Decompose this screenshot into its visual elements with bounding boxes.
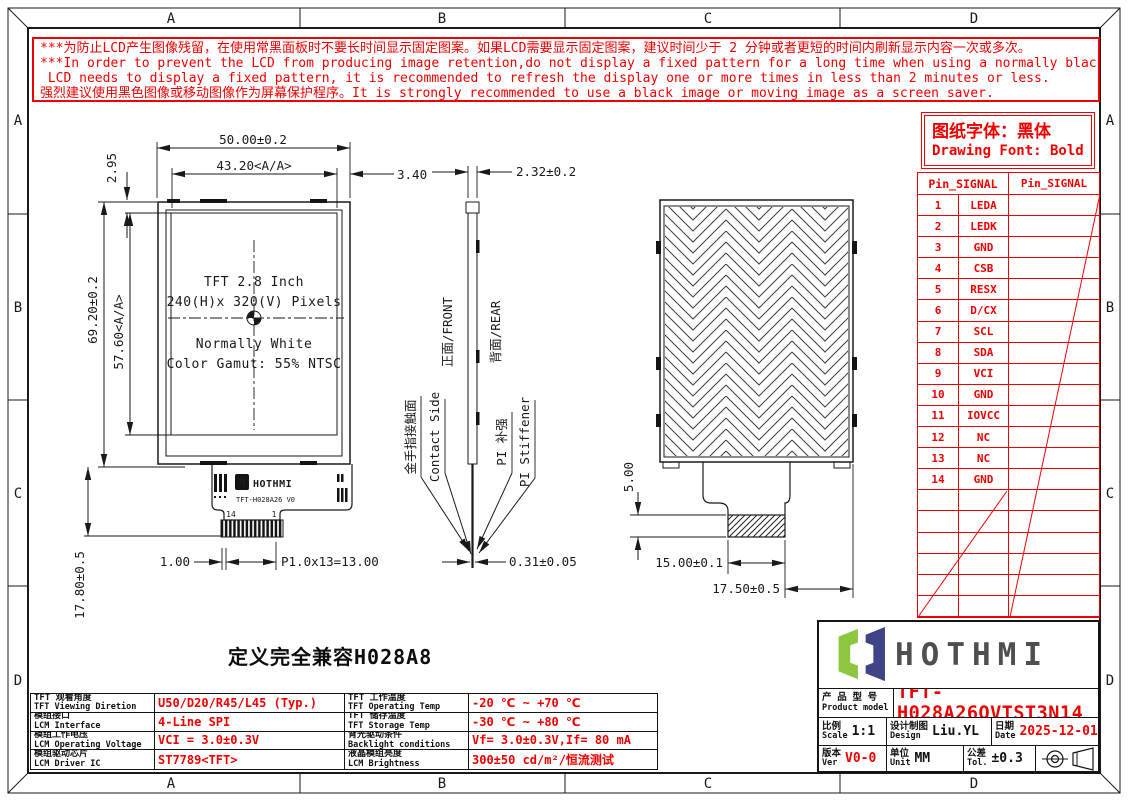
spec-value: 300±50 cd/m²/恒流测试 [469,750,657,769]
spec-value: ST7789<TFT> [155,750,344,769]
zone-label: B [438,776,446,792]
spec-value: -20 ℃ ~ +70 ℃ [469,694,657,713]
compatibility-note: 定义完全兼容H028A8 [228,641,432,670]
rear-view: 5.00 15.00±0.1 17.50±0.5 [621,200,857,598]
pin-no: 14 [918,469,959,490]
spec-value: VCI = 3.0±0.3V [155,732,344,751]
centerlines [168,240,344,430]
font-note-en: Drawing Font: Bold [932,142,1091,160]
gold-finger-connector [221,520,283,537]
side-view: 2.32±0.2 0.31±0.05 正面/FRONT 背面/REAR 金手指接… [403,164,577,569]
zone-label: B [14,300,22,316]
dim-aa-width: 43.20<A/A> [216,158,291,173]
design-cell: 设计制图Design Liu.YL [887,718,992,745]
pin-signal: GND [959,385,1009,406]
brand-logo: HOTHMI [819,622,1098,688]
spec-table-left: TFT 观看角度TFT Viewing Diretion U50/D20/R45… [31,694,344,769]
version-cell: 版本Ver V0-0 [819,746,887,771]
front-view: TFT 2.8 Inch 240(H)x 320(V) Pixels Norma… [158,199,352,537]
warning-line: ***为防止LCD产生图像残留，在使用常黑面板时不要长时间显示固定图案。如果LC… [40,41,1092,56]
spec-value: U50/D20/R45/L45 (Typ.) [155,694,344,713]
dim-right-margin: 3.40 [397,167,427,182]
mini-logo-h-icon: H [238,476,245,490]
pin-table-header-left: Pin_SIGNAL [918,173,1009,195]
pin-no: 5 [918,279,959,300]
zone-label: D [14,673,22,689]
dim-aa-height: 57.60<A/A> [111,294,126,369]
pin-signal: NC [959,448,1009,469]
pin-table: Pin_SIGNAL Pin_SIGNAL 1LEDA 2LEDK 3GND 4… [917,172,1100,618]
zone-label: A [1106,113,1115,129]
spec-value: Vf= 3.0±0.3V,If= 80 mA [469,732,657,751]
font-note-box: 图纸字体：黑体 Drawing Font: Bold [921,112,1095,169]
zone-label: D [970,11,978,27]
herringbone-hatch [665,207,848,456]
spec-label: 液晶模组亮度LCM Brightness [345,750,469,769]
label-contact-en: Contact Side [427,392,442,482]
dim-height: 69.20±0.2 [85,276,100,344]
spec-label: 背光驱动条件Backlight conditions [345,732,469,751]
fpc-mini-logo: H HOTHMI TFT-H028A26 V0 [235,474,295,504]
pin-signal: GND [959,237,1009,258]
zone-label: D [970,776,978,792]
pin-no: 13 [918,448,959,469]
drawing-sheet: A B C D A B C D A B C D A B C D [0,0,1128,801]
pin-signal: IOVCC [959,406,1009,427]
panel-line: 240(H)x 320(V) Pixels [167,295,342,310]
pin-signal: GND [959,469,1009,490]
pin-signal: LEDA [959,195,1009,216]
dim-stiffener-width: 15.00±0.1 [655,555,723,570]
spec-label: 模组驱动芯片LCM Driver IC [31,750,155,769]
pin-no: 7 [918,322,959,343]
center-mark-icon [247,311,261,325]
pin-signal: RESX [959,279,1009,300]
dim-tail-width: 17.50±0.5 [712,581,780,596]
dim-pin-margin: 1.00 [160,554,190,569]
tolerance-cell: 公差Tol. ±0.3 [964,746,1036,771]
pi-stiffener [728,515,785,537]
spec-label: TFT 储存温度TFT Storage Temp [345,713,469,732]
pin1-label: 1 [272,510,277,519]
panel-line: Color Gamut: 55% NTSC [167,357,342,372]
zone-label: A [167,11,176,27]
pin-no: 10 [918,385,959,406]
label-stiffener-en: PI Stiffener [517,396,532,487]
spec-table-right: TFT 工作温度TFT Operating Temp -20 ℃ ~ +70 ℃… [344,694,657,769]
dim-tail-length: 17.80±0.5 [72,551,87,619]
pin-signal: CSB [959,258,1009,279]
panel-line: Normally White [196,337,313,352]
dim-stiffener-height: 5.00 [621,462,636,492]
pin14-label: 14 [226,510,236,519]
pin-no: 8 [918,343,959,364]
pin-signal: NC [959,427,1009,448]
pin-no: 6 [918,300,959,321]
font-note-zh: 图纸字体：黑体 [932,122,1091,142]
label-contact-zh: 金手指接触面 [403,399,418,474]
fpc-brand-text: HOTHMI [253,479,292,490]
zone-label: C [704,11,712,27]
pin-signal: SCL [959,322,1009,343]
pin-signal: LEDK [959,216,1009,237]
zone-label: D [1106,673,1114,689]
spec-label: 模组接口LCM Interface [31,713,155,732]
pin-no: 4 [918,258,959,279]
spec-label: 模组工作电压LCM Operating Voltage [31,732,155,751]
dim-fpc-thickness: 0.31±0.05 [509,554,577,569]
zone-label: C [14,486,22,502]
spec-value: 4-Line SPI [155,713,344,732]
label-front-side: 正面/FRONT [440,296,455,367]
spec-table: TFT 观看角度TFT Viewing Diretion U50/D20/R45… [30,693,658,770]
scale-cell: 比例Scale 1:1 [819,718,887,745]
dim-top-margin: 2.95 [104,153,119,183]
spec-value: -30 ℃ ~ +80 ℃ [469,713,657,732]
spec-label: TFT 观看角度TFT Viewing Diretion [31,694,155,713]
product-model-label: 产 品 型 号Product model [819,689,894,717]
pin-no: 11 [918,406,959,427]
warning-line: 强烈建议使用黑色图像或移动图像作为屏幕保护程序。It is strongly r… [40,86,1092,101]
dim-thickness: 2.32±0.2 [516,164,576,179]
pin-signal: VCI [959,364,1009,385]
dim-pitch: P1.0x13=13.00 [281,554,379,569]
pin-no: 2 [918,216,959,237]
warning-line: LCD needs to display a fixed pattern, it… [40,71,1092,86]
date-cell: 日期Date 2025-12-01 [992,718,1098,745]
product-model-value: TFT-H028A26QVTST3N14 [894,689,1098,717]
zone-label: B [438,11,446,27]
zone-label: A [14,113,23,129]
zone-label: C [704,776,712,792]
pin-no: 1 [918,195,959,216]
zone-label: A [167,776,176,792]
pin-no: 9 [918,364,959,385]
panel-line: TFT 2.8 Inch [204,275,304,290]
spec-label: TFT 工作温度TFT Operating Temp [345,694,469,713]
zone-label: B [1106,300,1114,316]
front-dimensions: 50.00±0.2 43.20<A/A> 3.40 2.95 69.20±0.2… [72,132,427,619]
zone-label: C [1106,486,1114,502]
label-rear-side: 背面/REAR [488,300,503,363]
pin-table-header-right: Pin_SIGNAL [1009,173,1099,195]
label-stiffener-zh: PI 补强 [494,418,509,466]
brand-wordmark: HOTHMI [895,637,1049,673]
title-block: HOTHMI 产 品 型 号Product model TFT-H028A26Q… [817,620,1100,773]
mount-tabs [167,199,327,465]
dim-width: 50.00±0.2 [219,132,287,147]
projection-symbol-icon [1036,746,1098,771]
hothmi-logo-icon [825,627,887,683]
warning-line: ***In order to prevent the LCD from prod… [40,56,1092,71]
pin-no: 12 [918,427,959,448]
retention-warning-box: ***为防止LCD产生图像残留，在使用常黑面板时不要长时间显示固定图案。如果LC… [32,37,1100,102]
pin-signal: SDA [959,343,1009,364]
unit-cell: 单位Unit MM [887,746,964,771]
pin-no: 3 [918,237,959,258]
pin-signal: D/CX [959,300,1009,321]
fpc-model-text: TFT-H028A26 V0 [236,496,295,504]
